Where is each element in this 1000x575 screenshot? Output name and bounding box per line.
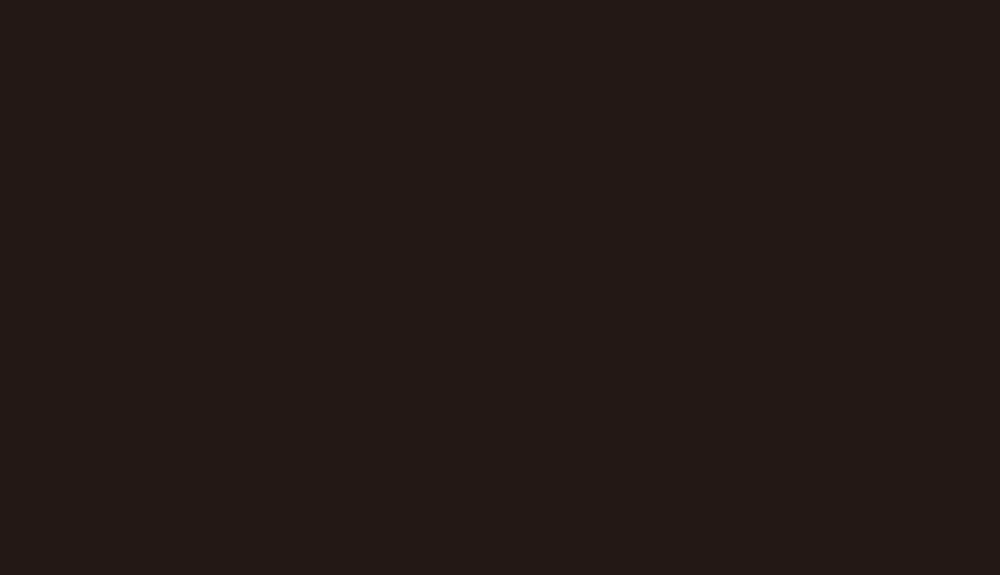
blank-screen [0,0,1000,575]
